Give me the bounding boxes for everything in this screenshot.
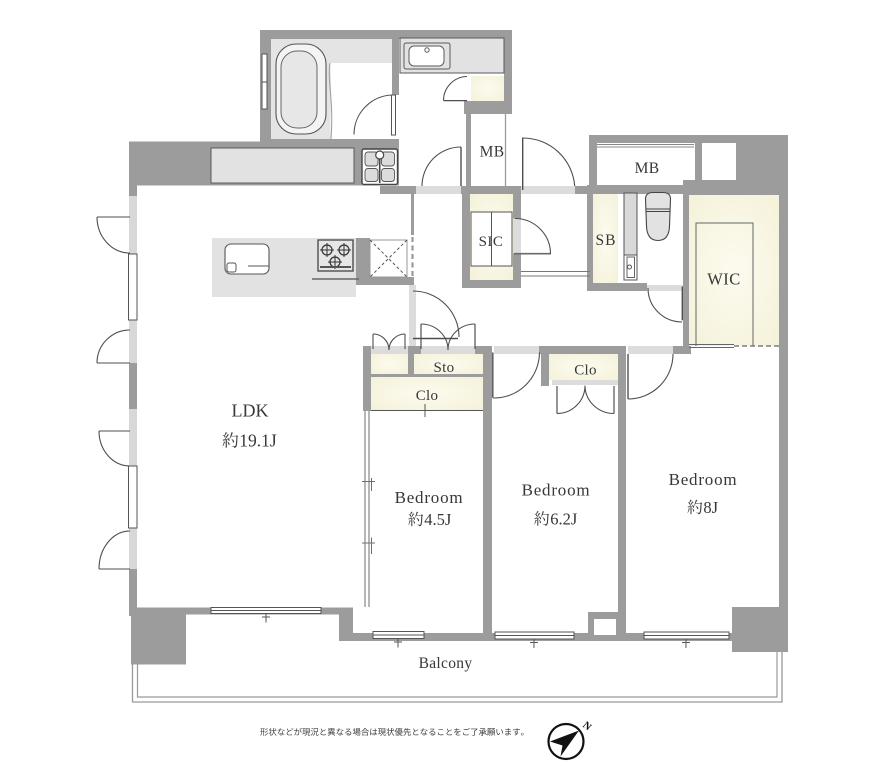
svg-text:8J: 8J <box>703 498 718 517</box>
svg-text:6.2J: 6.2J <box>550 510 578 529</box>
svg-text:Sto: Sto <box>434 360 455 376</box>
svg-text:19.1J: 19.1J <box>239 431 277 451</box>
svg-text:Clo: Clo <box>416 388 439 404</box>
svg-text:LDK: LDK <box>232 401 269 421</box>
svg-text:Clo: Clo <box>574 363 597 379</box>
svg-text:Bedroom: Bedroom <box>522 481 591 500</box>
svg-text:MB: MB <box>480 144 505 161</box>
svg-text:Bedroom: Bedroom <box>395 488 464 507</box>
svg-text:MB: MB <box>635 160 660 177</box>
svg-text:WIC: WIC <box>707 270 741 289</box>
svg-text:Bedroom: Bedroom <box>669 470 738 489</box>
svg-text:SIC: SIC <box>479 234 504 250</box>
svg-text:4.5J: 4.5J <box>424 510 452 529</box>
svg-text:Balcony: Balcony <box>419 655 473 672</box>
svg-text:SB: SB <box>596 232 617 249</box>
